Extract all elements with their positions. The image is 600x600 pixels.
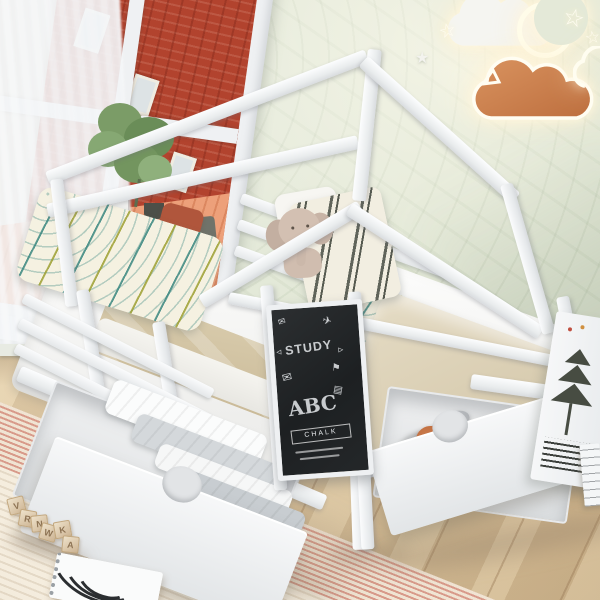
chalk-doodle-plane-icon: ✈ [321, 315, 333, 328]
decor-dot [580, 325, 585, 330]
cloud-outline-neon-icon [573, 46, 600, 92]
chalk-doodle-envelope-icon: ✉ [277, 317, 287, 328]
chalkboard: ✈ ✉ ◃ STUDY ▹ ✉ ⚑ ▤ ABC CHALK [266, 299, 374, 481]
alphabet-block: A [61, 535, 80, 554]
tree-trunk [564, 403, 572, 435]
chalk-abc-text: ABC [287, 392, 338, 419]
block-letter: W [43, 527, 54, 539]
block-letter: A [67, 539, 75, 550]
chalk-study-text: STUDY [284, 338, 333, 357]
block-letter: K [58, 524, 66, 535]
chalk-doodle-flag-icon: ⚑ [331, 364, 341, 375]
chalk-arrow-right-icon: ▹ [338, 345, 344, 355]
chalk-squiggle [295, 447, 343, 454]
chalk-banner: CHALK [290, 423, 351, 444]
chalk-arrow-left-icon: ◃ [276, 348, 282, 358]
product-photo-scene: ☆ ☆ ☆ ★ [0, 0, 600, 600]
decor-dot [568, 327, 573, 332]
chalk-doodle-envelope-icon: ✉ [281, 370, 294, 384]
solid-star-decal-icon: ★ [415, 48, 429, 68]
chalk-squiggle [300, 454, 340, 460]
